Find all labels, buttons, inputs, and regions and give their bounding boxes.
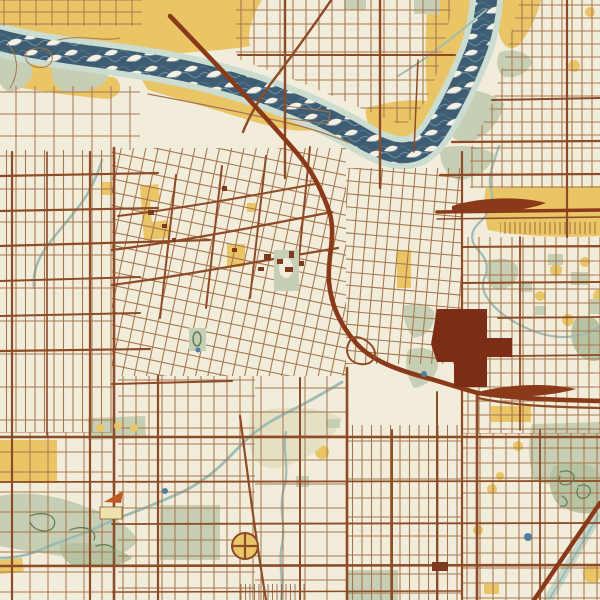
strip-building <box>130 424 138 432</box>
arterial-h <box>452 141 600 142</box>
pond <box>196 348 201 353</box>
yellow-patch <box>496 472 504 480</box>
strip-building <box>114 422 122 430</box>
strip-building <box>96 424 104 432</box>
sage-patch <box>344 0 366 10</box>
arterial-h <box>462 282 600 283</box>
arterial-h <box>462 246 600 247</box>
sage-patch <box>535 306 546 315</box>
building <box>285 267 293 272</box>
pond <box>524 533 532 541</box>
yellow-downtown-4 <box>397 250 411 288</box>
arterial-h <box>498 317 600 318</box>
yellow-patch <box>535 291 545 301</box>
pond <box>162 488 168 494</box>
pond <box>421 371 427 377</box>
arterial-h <box>112 591 462 592</box>
building <box>299 261 304 266</box>
arterial-h <box>112 523 600 524</box>
building <box>232 248 237 252</box>
map-poster <box>0 0 600 600</box>
building <box>264 254 271 260</box>
arterial-h <box>440 174 600 175</box>
map-svg <box>0 0 600 600</box>
building <box>222 186 227 191</box>
sage-patch <box>589 299 600 314</box>
park-block-sw <box>160 505 220 560</box>
yellow-patch <box>513 441 523 451</box>
yellow-se-strip <box>491 406 531 422</box>
yellow-patch <box>585 7 595 17</box>
building <box>148 210 154 215</box>
arterial-h <box>512 355 600 356</box>
yellow-patch <box>562 314 574 326</box>
building <box>172 238 176 242</box>
landmark-box <box>100 507 122 519</box>
building <box>277 259 283 264</box>
building <box>162 224 167 228</box>
building <box>258 267 264 271</box>
building <box>432 562 448 571</box>
building <box>289 251 294 258</box>
sage-patch <box>326 419 340 428</box>
yellow-patch <box>484 584 499 594</box>
